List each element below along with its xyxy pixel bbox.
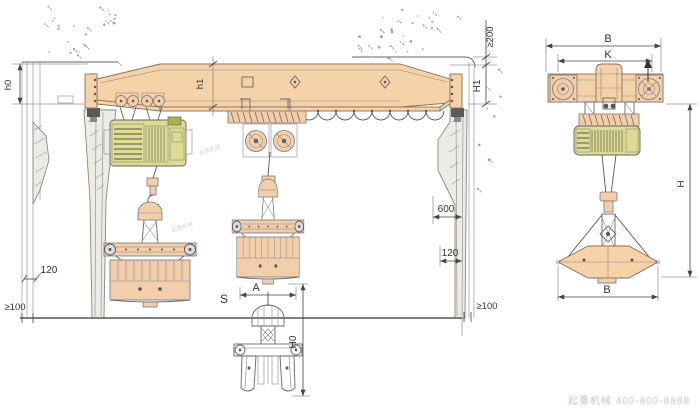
end-carriage-part-part bbox=[552, 98, 554, 100]
concrete-dots-part bbox=[57, 27, 59, 29]
concrete-dots-part bbox=[422, 24, 424, 26]
dim-label-right-clearance: ≥100 bbox=[476, 301, 497, 312]
dim-wall-clearance-left: ≥100 bbox=[4, 302, 33, 323]
concrete-dots-part bbox=[390, 28, 393, 31]
concrete-dots-part bbox=[382, 17, 383, 18]
concrete-dots-part bbox=[83, 43, 85, 45]
grab-bucket-lowered-open-part bbox=[245, 356, 247, 388]
concrete-dots-part bbox=[110, 20, 112, 22]
motor-fins bbox=[114, 129, 142, 159]
concrete-dots-part bbox=[477, 188, 479, 190]
side-grab-open-part bbox=[631, 259, 634, 262]
concrete-dots-part bbox=[48, 6, 50, 8]
concrete-dots-part bbox=[113, 22, 115, 24]
concrete-dots-part bbox=[89, 29, 91, 32]
concrete-dots-part bbox=[108, 22, 110, 25]
end-carriage-part-part bbox=[552, 77, 554, 79]
concrete-dots-part bbox=[487, 108, 489, 110]
concrete-dots-part bbox=[102, 8, 104, 11]
concrete-dots-part bbox=[87, 27, 89, 29]
main-girder-part-part bbox=[94, 100, 96, 102]
crane-leg-right-part bbox=[454, 117, 461, 122]
end-carriage-part bbox=[611, 104, 616, 109]
concrete-dots-part bbox=[85, 33, 87, 35]
concrete-dots-part bbox=[491, 161, 493, 164]
main-girder-part bbox=[384, 81, 387, 84]
concrete-dots-part bbox=[48, 51, 50, 53]
grab-bucket-lowered-open-part bbox=[241, 356, 256, 391]
concrete-dots-part bbox=[108, 10, 109, 11]
hoist-badge bbox=[168, 117, 181, 125]
hook-swivel bbox=[147, 178, 158, 186]
concrete-dots-part bbox=[480, 190, 482, 193]
concrete-dots-part bbox=[87, 47, 89, 50]
dim-label-H: H bbox=[676, 180, 687, 187]
electric-hoist-part bbox=[158, 100, 161, 103]
concrete-dots-part bbox=[409, 40, 412, 43]
concrete-dots-part bbox=[380, 29, 382, 31]
main-girder-part-part bbox=[371, 110, 373, 112]
concrete-dots-part bbox=[389, 45, 391, 47]
main-girder-part-part bbox=[425, 110, 427, 112]
concrete-dots-part bbox=[50, 8, 52, 11]
end-carriage-part-part bbox=[659, 98, 661, 100]
grab-bucket-lowered-open-part bbox=[286, 367, 289, 370]
wall-box-detail bbox=[58, 96, 73, 103]
concrete-dots-part bbox=[358, 35, 361, 38]
electric-hoist-part bbox=[132, 100, 135, 103]
concrete-dots-part bbox=[357, 45, 359, 47]
concrete-dots-part bbox=[499, 95, 501, 97]
side-grab-open-part bbox=[606, 232, 610, 236]
concrete-dots-part bbox=[79, 51, 80, 52]
grab-bucket-lowered-open-part bbox=[258, 306, 278, 326]
side-hoist-trolley-part bbox=[602, 155, 606, 194]
travel-wheel-right bbox=[451, 108, 464, 117]
side-grab-open-part bbox=[583, 259, 586, 262]
concrete-dots-part bbox=[109, 13, 111, 15]
main-girder-part-part bbox=[94, 79, 96, 81]
concrete-dots-part bbox=[431, 27, 433, 29]
grab-bucket-lowered-open-part bbox=[252, 305, 284, 326]
dim-120-left-part bbox=[22, 275, 27, 282]
end-carriage-part-part bbox=[573, 98, 575, 100]
end-carriage-part-part bbox=[638, 98, 640, 100]
grab-bucket-lowered-open-part bbox=[248, 367, 251, 370]
dim-label-left-clearance: ≥100 bbox=[4, 302, 25, 313]
concrete-dots-part bbox=[68, 41, 70, 43]
dim-h0: h0 bbox=[3, 64, 88, 104]
drawing-canvas: h0 h1 ≥200 H1 600 120 bbox=[0, 0, 700, 420]
concrete-dots-part bbox=[437, 28, 439, 30]
concrete-dots-part bbox=[58, 25, 60, 27]
bottom-flange-rail bbox=[160, 107, 440, 111]
concrete-dots-part bbox=[77, 54, 79, 56]
concrete-dots-part bbox=[103, 23, 105, 25]
dim-label-600: 600 bbox=[438, 204, 455, 215]
concrete-dots-part bbox=[422, 48, 424, 50]
building-wall-right-part bbox=[466, 57, 475, 68]
dim-H: H bbox=[661, 104, 697, 277]
end-carriage-part-part bbox=[573, 77, 575, 79]
end-carriage bbox=[548, 59, 663, 109]
electric-hoist-part bbox=[150, 186, 156, 195]
concrete-dots-part bbox=[412, 22, 414, 24]
concrete-dots-part bbox=[400, 22, 402, 24]
end-carriage-part-part bbox=[638, 77, 640, 79]
concrete-dots-part bbox=[388, 57, 391, 60]
main-girder-part-part bbox=[94, 86, 96, 88]
tiny-watermark-2: 起重机械 bbox=[198, 142, 222, 157]
front-view: h0 h1 ≥200 H1 600 120 bbox=[3, 6, 502, 396]
concrete-dots-part bbox=[69, 52, 71, 54]
side-view: B K H B bbox=[546, 33, 697, 301]
concrete-dots-part bbox=[383, 31, 385, 34]
building-wall-left-part bbox=[118, 62, 122, 66]
concrete-dots-part bbox=[76, 50, 78, 53]
concrete-dots-part bbox=[459, 18, 461, 21]
main-girder-part-part bbox=[353, 110, 355, 112]
concrete-dots-part bbox=[400, 41, 401, 42]
electric-hoist-part bbox=[153, 166, 157, 178]
concrete-dots-part bbox=[73, 48, 75, 50]
electric-hoist-part bbox=[120, 100, 123, 103]
main-girder-part-part bbox=[451, 100, 453, 102]
dim-label-ceiling-clearance: ≥200 bbox=[485, 26, 496, 47]
crane-leg-left-part bbox=[90, 117, 97, 122]
concrete-dots-part bbox=[47, 25, 49, 28]
concrete-dots-part bbox=[52, 20, 54, 22]
dim-label-K: K bbox=[604, 49, 612, 61]
concrete-dots-part bbox=[500, 71, 502, 74]
concrete-dots-part bbox=[368, 45, 370, 47]
dim-label-A: A bbox=[252, 282, 260, 294]
main-girder-part-part bbox=[451, 86, 453, 88]
concrete-dots-part bbox=[361, 50, 363, 53]
concrete-dots-part bbox=[498, 68, 500, 70]
dim-label-120-right: 120 bbox=[442, 248, 459, 259]
side-hoist-trolley-part bbox=[585, 102, 594, 115]
concrete-dots-part bbox=[391, 31, 394, 34]
concrete-dots-part bbox=[486, 87, 487, 88]
main-girder-part-part bbox=[317, 110, 319, 112]
side-hoist-trolley-part bbox=[604, 201, 613, 212]
concrete-dots-part bbox=[403, 36, 404, 37]
end-carriage-part-part bbox=[659, 77, 661, 79]
concrete-dots-part bbox=[407, 51, 409, 53]
dim-label-h1: h1 bbox=[195, 79, 206, 90]
main-girder-part-part bbox=[451, 93, 453, 95]
concrete-dots-part bbox=[429, 17, 431, 19]
concrete-dots-part bbox=[401, 9, 403, 11]
concrete-dots-part bbox=[80, 56, 82, 59]
concrete-dots-part bbox=[73, 25, 75, 27]
concrete-dots-part bbox=[358, 48, 360, 50]
dim-120-left: 120 bbox=[22, 265, 58, 282]
grab-bucket-lowered-open-part bbox=[289, 356, 291, 388]
side-grab-open-part bbox=[598, 278, 616, 283]
dim-label-h0: h0 bbox=[3, 80, 14, 91]
crane-drawing: h0 h1 ≥200 H1 600 120 bbox=[0, 0, 700, 420]
dim-label-B-top: B bbox=[604, 33, 611, 45]
main-girder-part-part bbox=[94, 93, 96, 95]
electric-hoist-part bbox=[146, 100, 149, 103]
main-girder-part-part bbox=[451, 79, 453, 81]
concrete-dots-part bbox=[115, 14, 117, 16]
concrete-dots-part bbox=[417, 15, 419, 17]
main-girder-part bbox=[294, 81, 297, 84]
side-hoist-trolley-part bbox=[625, 102, 634, 115]
concrete-dots-part bbox=[392, 47, 394, 50]
concrete-dots-part bbox=[105, 20, 106, 21]
main-girder-part-part bbox=[335, 110, 337, 112]
dim-H0: H0 bbox=[288, 284, 310, 396]
concrete-dots-part bbox=[457, 16, 459, 18]
concrete-dots-part bbox=[433, 12, 435, 14]
travel-wheel-left bbox=[87, 108, 100, 117]
side-hoist-trolley-part bbox=[579, 114, 639, 126]
concrete-dots-part bbox=[54, 18, 56, 20]
concrete-dots-part bbox=[431, 21, 433, 23]
travel-direction-arrow-part bbox=[644, 59, 652, 68]
dim-label-H1: H1 bbox=[472, 79, 483, 92]
concrete-dots-part bbox=[488, 158, 491, 161]
tiny-watermark-1: 起重机械 bbox=[170, 219, 194, 234]
grab-bucket-lowered-open-part bbox=[239, 349, 242, 352]
concrete-dots-part bbox=[493, 115, 495, 117]
main-girder-part-part bbox=[407, 110, 409, 112]
corner-watermark: 起重机械 400-800-8888 bbox=[568, 394, 690, 407]
side-grab-open bbox=[556, 214, 660, 283]
dim-label-span: S bbox=[220, 292, 228, 306]
end-carriage-part bbox=[561, 87, 565, 91]
grab-bucket-lowered-open-part bbox=[280, 356, 295, 391]
concrete-dots-part bbox=[397, 20, 399, 22]
main-girder-part-part bbox=[389, 110, 391, 112]
concrete-dots-part bbox=[44, 23, 46, 25]
dim-label-120-left: 120 bbox=[41, 265, 58, 276]
dim-label-H0: H0 bbox=[288, 335, 299, 348]
concrete-dots-part bbox=[478, 144, 481, 147]
concrete-dots-part bbox=[99, 6, 101, 8]
grab-bucket-lowered-open-part bbox=[272, 356, 278, 384]
grab-bucket-lowered-open-part bbox=[258, 356, 264, 384]
dim-label-B-bottom: B bbox=[603, 284, 610, 296]
grab-bucket-center bbox=[232, 179, 304, 284]
side-hoist-trolley-part bbox=[611, 155, 616, 194]
concrete-dots-part bbox=[435, 14, 437, 17]
concrete-dots-part bbox=[391, 59, 393, 62]
concrete-dots-part bbox=[380, 35, 383, 38]
concrete-dots-part bbox=[84, 45, 86, 47]
grab-bucket-left bbox=[104, 202, 196, 307]
electric-hoist-part bbox=[186, 130, 192, 154]
wall-corbel-left bbox=[33, 122, 49, 204]
side-swivel bbox=[600, 192, 617, 201]
concrete-dots-part bbox=[488, 88, 490, 91]
concrete-dots-part bbox=[395, 51, 396, 52]
girder-saddle bbox=[596, 64, 622, 102]
side-hoist-trolley bbox=[574, 102, 640, 212]
concrete-dots-part bbox=[439, 30, 441, 32]
end-carriage-part bbox=[604, 104, 609, 109]
concrete-dots-part bbox=[378, 46, 381, 49]
festoon-cable-loops bbox=[300, 111, 444, 120]
concrete-dots-part bbox=[425, 26, 427, 29]
concrete-dots-part bbox=[370, 47, 372, 50]
concrete-dots-part bbox=[360, 47, 362, 50]
concrete-dots-part bbox=[402, 43, 404, 46]
side-grab-open-part bbox=[602, 214, 615, 250]
concrete-dots-part bbox=[114, 18, 116, 20]
